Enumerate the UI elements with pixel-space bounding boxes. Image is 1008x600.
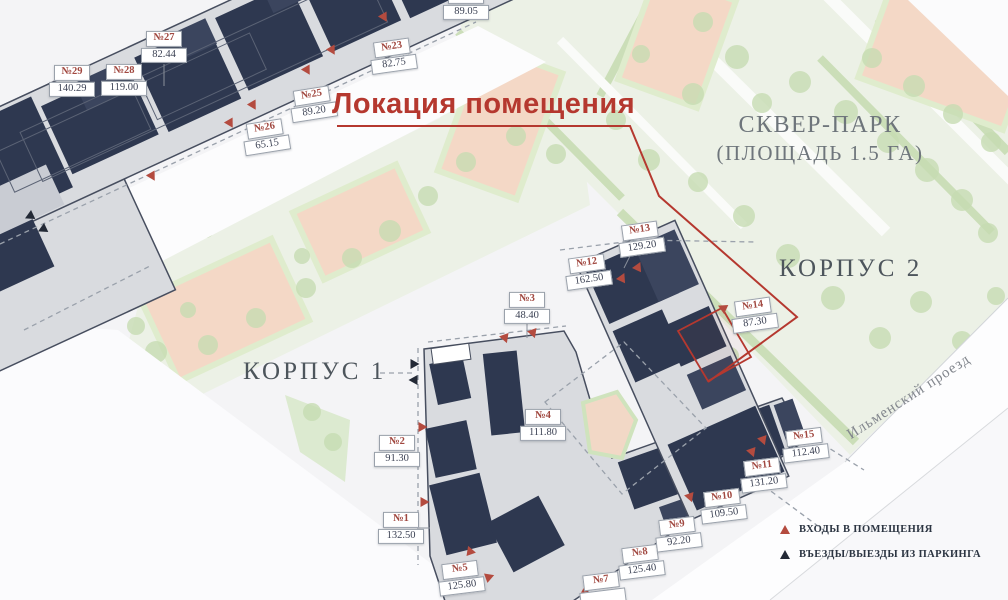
plot-label[interactable]: №2382.75 — [368, 37, 418, 75]
plot-label[interactable]: №2189.05 — [443, 0, 489, 20]
plot-label[interactable]: №29140.29 — [49, 65, 95, 97]
plot-area-value: 91.30 — [374, 452, 420, 468]
plot-number: №2 — [379, 435, 415, 451]
plot-area-value: 89.05 — [443, 5, 489, 21]
plot-label[interactable]: №13129.20 — [616, 220, 666, 258]
plot-label[interactable]: №348.40 — [504, 292, 550, 324]
plot-number: №21 — [448, 0, 484, 4]
plot-label[interactable]: №2665.15 — [241, 118, 291, 157]
plot-label[interactable]: №291.30 — [374, 435, 420, 467]
plot-number: №3 — [509, 292, 545, 308]
plot-label[interactable]: №10109.50 — [698, 487, 748, 525]
plot-label[interactable]: №1132.50 — [378, 512, 424, 544]
plot-label[interactable]: №992.20 — [653, 515, 703, 553]
plot-area-value: 111.80 — [520, 426, 566, 442]
plot-area-value: 48.40 — [504, 309, 550, 325]
plot-number: №4 — [525, 409, 561, 425]
plot-label[interactable]: №12162.50 — [563, 253, 613, 291]
plot-area-value: 119.00 — [101, 81, 147, 97]
page-title: Локация помещения — [332, 88, 635, 121]
plot-label[interactable]: №1487.30 — [729, 296, 779, 334]
plot-label[interactable]: №4111.80 — [520, 409, 566, 441]
plot-number: №27 — [146, 31, 182, 47]
plot-area-value: 140.29 — [49, 82, 95, 98]
plot-label[interactable]: №11131.20 — [738, 456, 788, 494]
plot-area-value: 82.44 — [141, 48, 187, 64]
plot-label[interactable]: №5125.80 — [436, 559, 486, 597]
site-plan-page: Локация помещения СКВЕР-ПАРК (ПЛОЩАДЬ 1.… — [0, 0, 1008, 600]
plot-number: №1 — [383, 512, 419, 528]
plot-area-value: 132.50 — [378, 529, 424, 545]
plot-number: №28 — [106, 64, 142, 80]
plot-label[interactable]: №15112.40 — [780, 426, 830, 464]
plot-label[interactable]: №2782.44 — [141, 31, 187, 63]
plot-label[interactable]: №2589.20 — [288, 85, 338, 124]
plot-label[interactable]: №28119.00 — [101, 64, 147, 96]
plot-number: №29 — [54, 65, 90, 81]
